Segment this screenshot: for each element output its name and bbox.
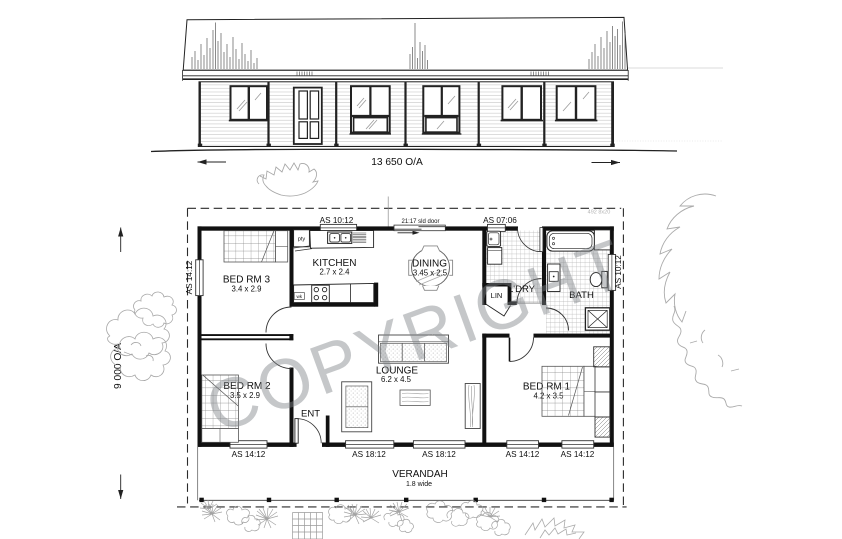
svg-text:3.45 x 2.5: 3.45 x 2.5	[413, 268, 448, 277]
svg-text:pty: pty	[298, 237, 306, 243]
svg-text:13 650 O/A: 13 650 O/A	[371, 157, 423, 168]
svg-text:AS 18:12: AS 18:12	[352, 450, 386, 459]
svg-text:AS 14:12: AS 14:12	[185, 260, 194, 294]
svg-text:AS 07:06: AS 07:06	[483, 216, 517, 225]
svg-text:VERANDAH: VERANDAH	[392, 469, 448, 480]
svg-text:AS 14:12: AS 14:12	[232, 450, 266, 459]
svg-text:AS 10:12: AS 10:12	[320, 216, 354, 225]
svg-text:492 8x20: 492 8x20	[588, 210, 611, 216]
svg-text:2.7 x 2.4: 2.7 x 2.4	[320, 268, 351, 277]
svg-text:9 000 O/A: 9 000 O/A	[113, 343, 124, 389]
svg-text:AS 14:12: AS 14:12	[506, 450, 540, 459]
svg-text:AS 18:12: AS 18:12	[422, 450, 456, 459]
svg-text:wk: wk	[296, 294, 302, 299]
svg-text:1.8 wide: 1.8 wide	[406, 481, 432, 488]
svg-text:3.4 x 2.9: 3.4 x 2.9	[232, 285, 262, 294]
svg-text:21:17 sld door: 21:17 sld door	[401, 219, 439, 225]
svg-text:AS 14:12: AS 14:12	[561, 450, 595, 459]
